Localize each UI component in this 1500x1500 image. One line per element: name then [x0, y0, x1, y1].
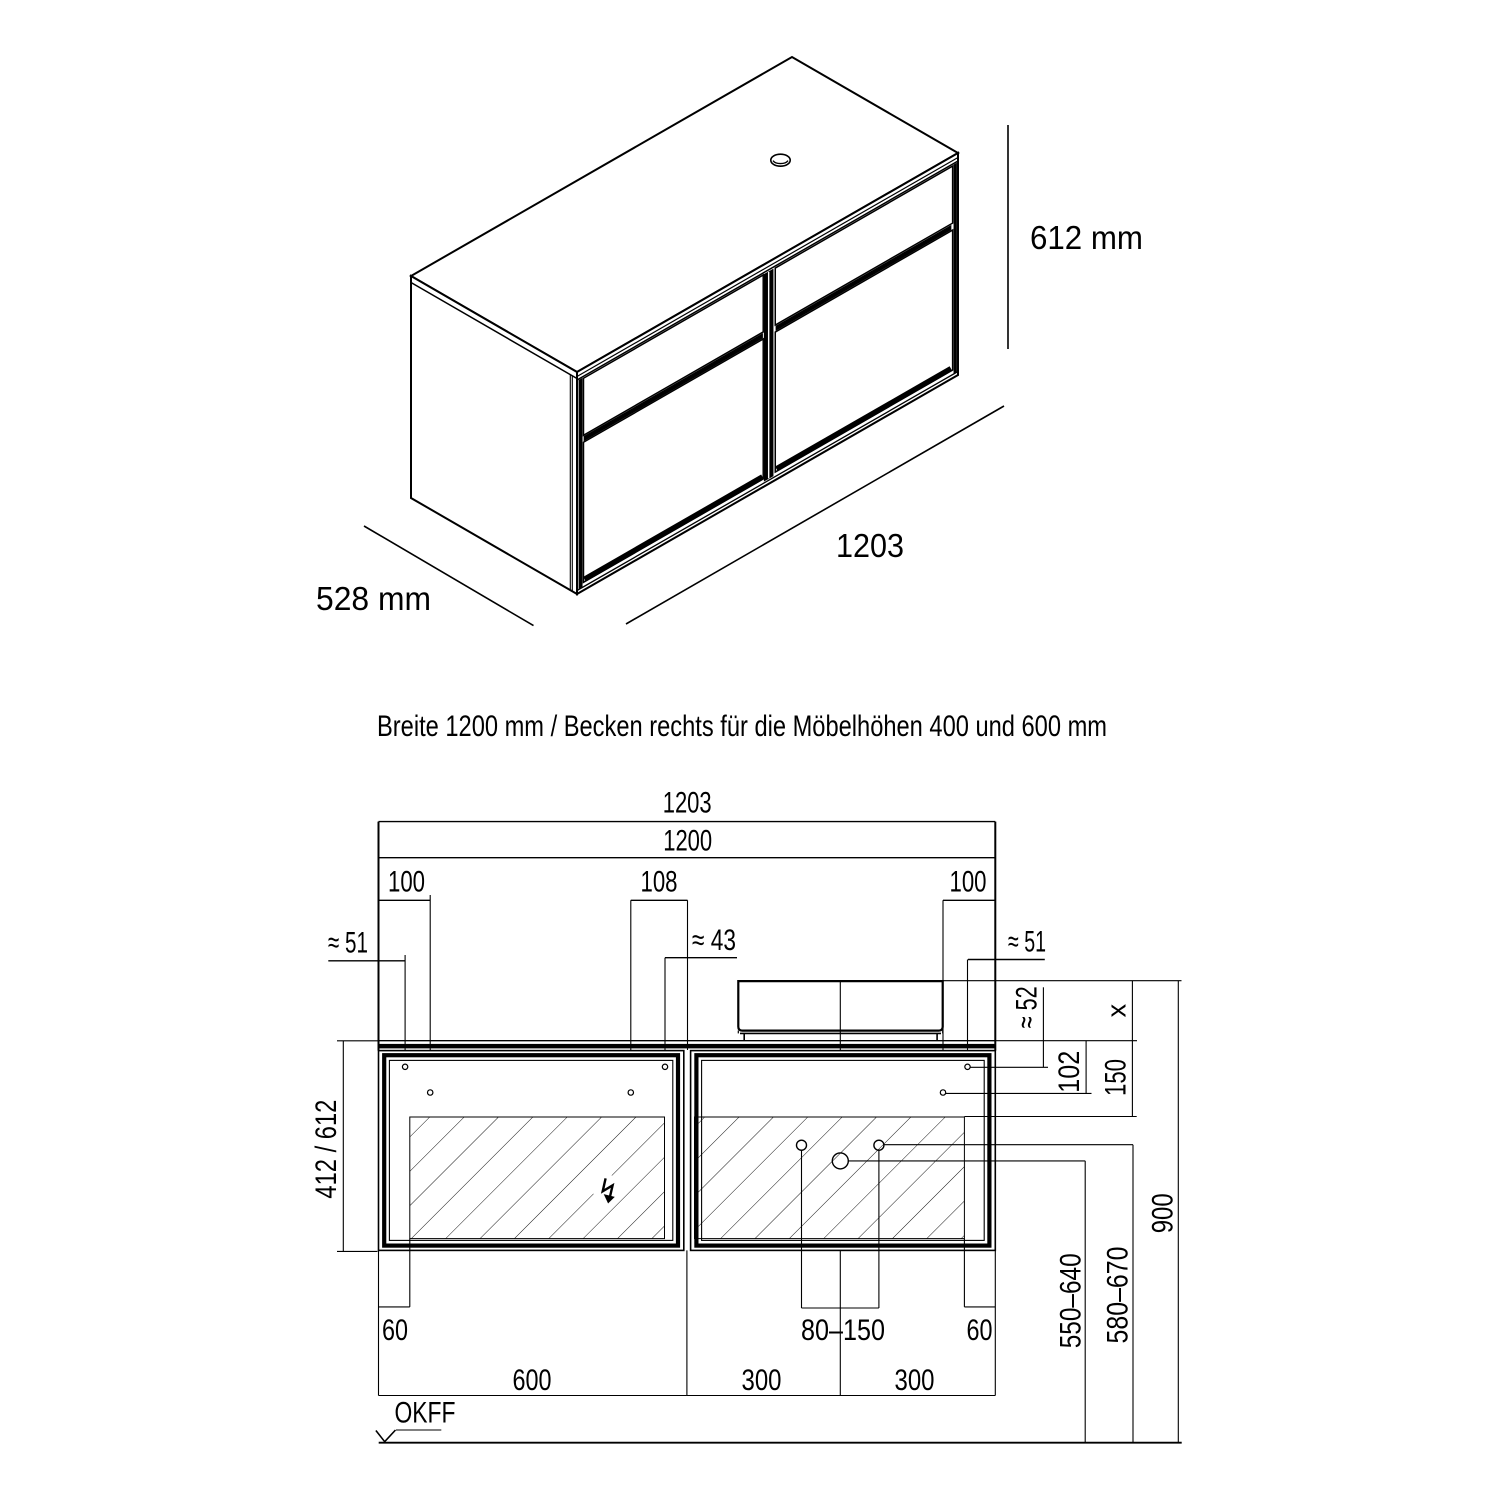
- svg-text:≈ 52: ≈ 52: [1011, 986, 1044, 1028]
- svg-text:412 / 612: 412 / 612: [310, 1100, 343, 1199]
- svg-text:900: 900: [1147, 1193, 1180, 1233]
- svg-text:528 mm: 528 mm: [316, 580, 431, 617]
- svg-text:≈ 51: ≈ 51: [1008, 926, 1046, 959]
- svg-text:Breite 1200 mm / Becken rechts: Breite 1200 mm / Becken rechts für die M…: [377, 710, 1107, 743]
- svg-text:OKFF: OKFF: [395, 1396, 456, 1429]
- svg-text:108: 108: [641, 866, 678, 899]
- svg-text:100: 100: [950, 866, 987, 899]
- svg-text:600: 600: [513, 1364, 552, 1397]
- svg-text:80–150: 80–150: [801, 1314, 885, 1347]
- svg-text:x: x: [1102, 1003, 1132, 1017]
- svg-text:60: 60: [967, 1314, 993, 1347]
- svg-text:1203: 1203: [663, 787, 712, 820]
- svg-text:300: 300: [895, 1364, 935, 1397]
- svg-text:≈ 43: ≈ 43: [692, 924, 736, 957]
- svg-text:612 mm: 612 mm: [1030, 219, 1143, 256]
- svg-text:580–670: 580–670: [1102, 1247, 1135, 1344]
- svg-text:100: 100: [388, 866, 425, 899]
- svg-text:550–640: 550–640: [1055, 1253, 1088, 1348]
- svg-text:1203: 1203: [836, 527, 904, 564]
- svg-text:150: 150: [1100, 1059, 1133, 1096]
- svg-text:≈ 51: ≈ 51: [328, 927, 368, 960]
- svg-text:60: 60: [382, 1314, 408, 1347]
- svg-text:1200: 1200: [663, 825, 712, 858]
- svg-text:300: 300: [742, 1364, 782, 1397]
- svg-text:102: 102: [1053, 1051, 1086, 1093]
